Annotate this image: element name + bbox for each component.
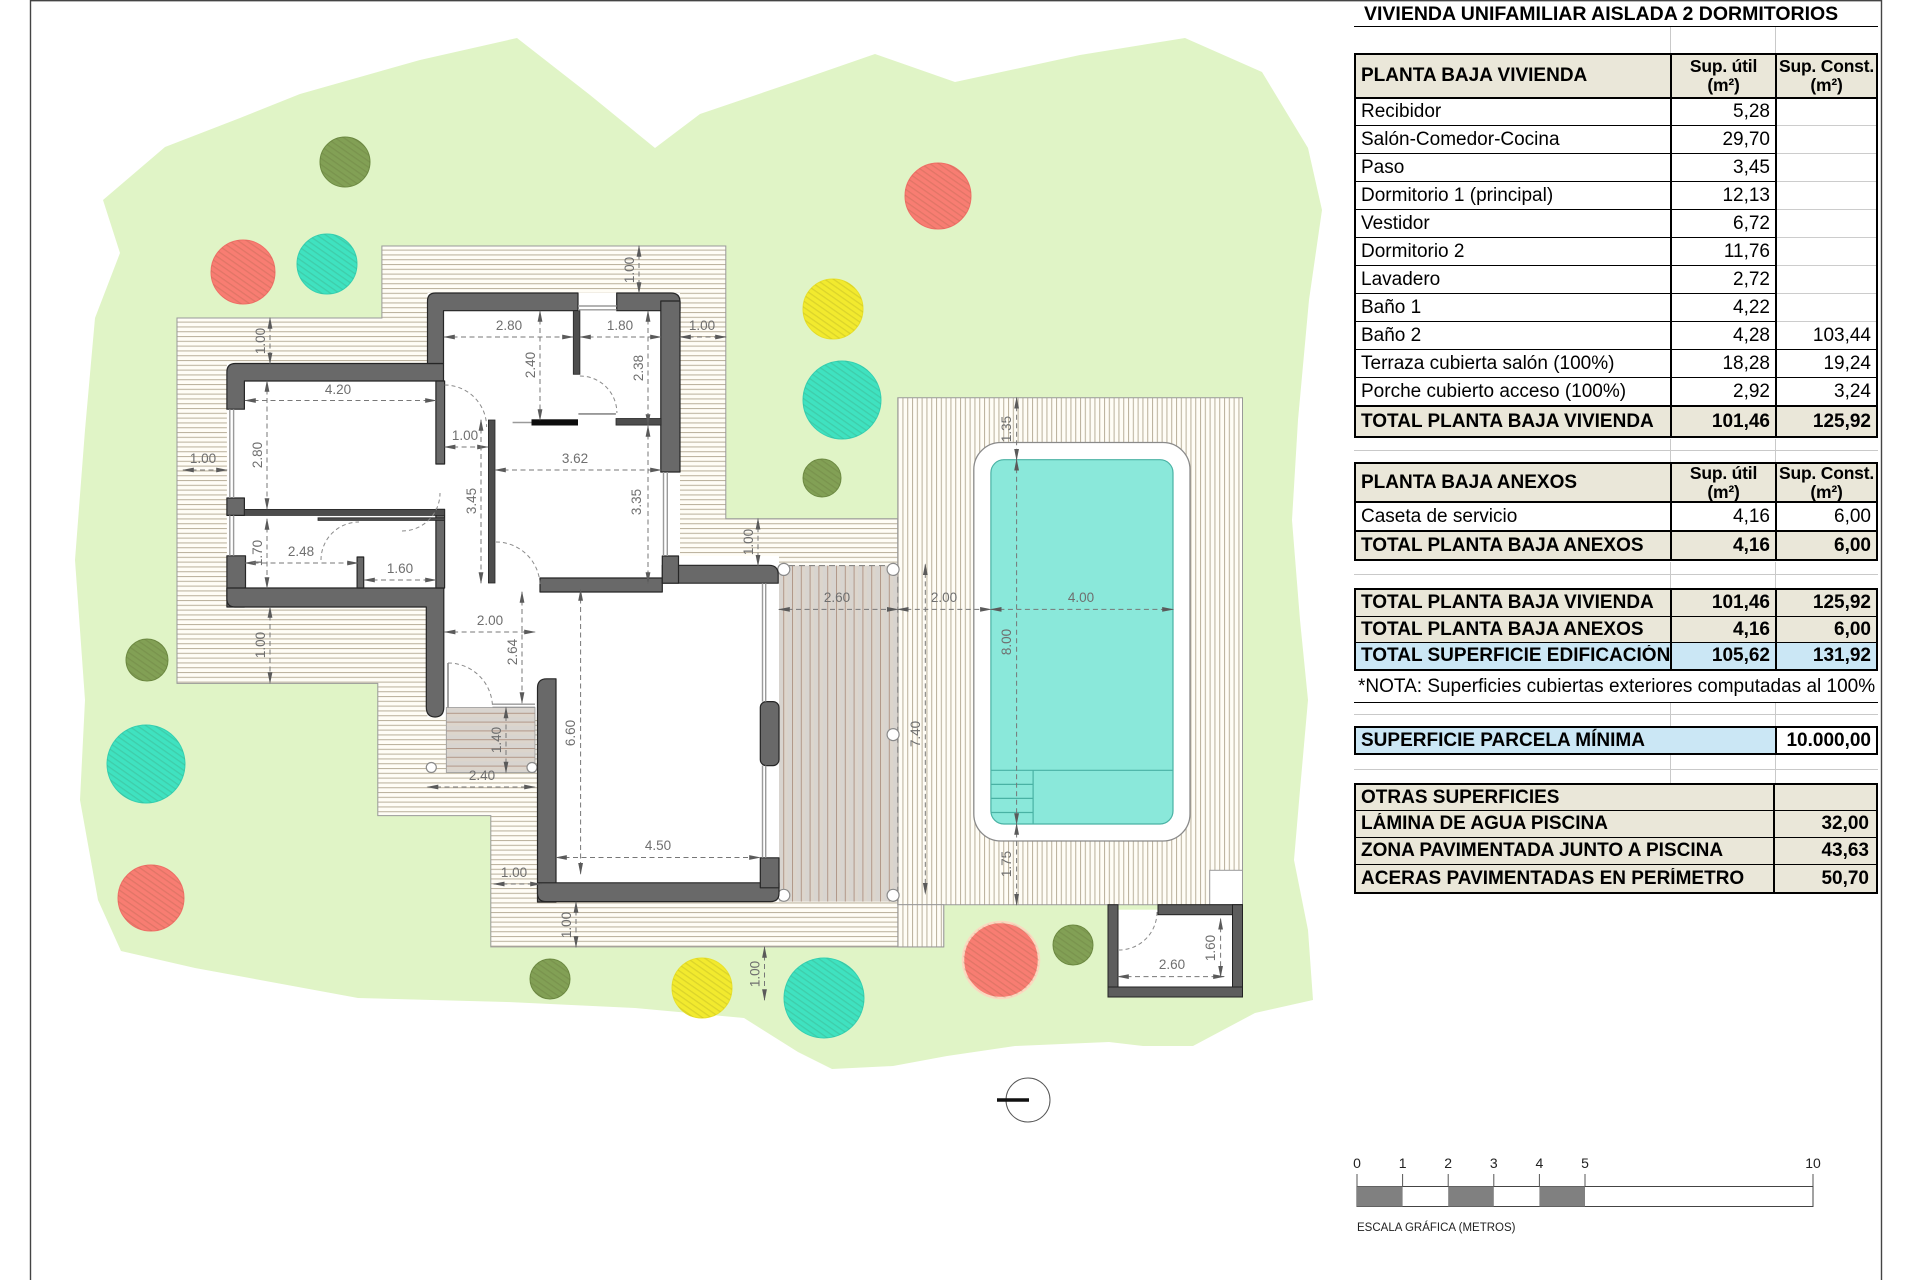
svg-text:1.35: 1.35 xyxy=(999,416,1014,442)
svg-text:3: 3 xyxy=(1490,1155,1498,1171)
svg-text:2.00: 2.00 xyxy=(477,613,503,628)
svg-text:1.00: 1.00 xyxy=(190,451,216,466)
svg-text:1.75: 1.75 xyxy=(999,851,1014,877)
svg-text:1.70: 1.70 xyxy=(250,540,265,566)
svg-text:1.60: 1.60 xyxy=(1203,935,1218,961)
svg-text:1.60: 1.60 xyxy=(387,561,413,576)
svg-text:2.64: 2.64 xyxy=(505,638,520,665)
svg-text:4.20: 4.20 xyxy=(325,382,351,397)
svg-text:7.40: 7.40 xyxy=(908,721,923,747)
svg-text:1.00: 1.00 xyxy=(748,961,763,987)
svg-text:2.60: 2.60 xyxy=(1159,957,1185,972)
svg-text:6.60: 6.60 xyxy=(563,720,578,746)
svg-text:3.35: 3.35 xyxy=(629,489,644,515)
svg-text:2.80: 2.80 xyxy=(250,442,265,468)
svg-text:2.00: 2.00 xyxy=(931,590,957,605)
svg-text:2.40: 2.40 xyxy=(523,352,538,378)
svg-text:0: 0 xyxy=(1353,1155,1361,1171)
svg-text:2.80: 2.80 xyxy=(496,318,522,333)
svg-text:1.00: 1.00 xyxy=(622,257,637,283)
svg-text:10: 10 xyxy=(1805,1155,1821,1171)
svg-text:3.45: 3.45 xyxy=(464,488,479,514)
svg-text:8.00: 8.00 xyxy=(999,629,1014,655)
svg-text:5: 5 xyxy=(1581,1155,1589,1171)
svg-text:4: 4 xyxy=(1536,1155,1544,1171)
svg-text:2.60: 2.60 xyxy=(824,590,850,605)
svg-text:2.48: 2.48 xyxy=(288,544,314,559)
svg-text:3.62: 3.62 xyxy=(562,451,588,466)
svg-text:1.00: 1.00 xyxy=(253,632,268,658)
svg-text:1.00: 1.00 xyxy=(501,865,527,880)
svg-text:1.80: 1.80 xyxy=(607,318,633,333)
svg-text:2.40: 2.40 xyxy=(469,768,495,783)
svg-text:ESCALA GRÁFICA (METROS): ESCALA GRÁFICA (METROS) xyxy=(1357,1221,1516,1234)
svg-text:1.00: 1.00 xyxy=(253,328,268,354)
svg-text:2.38: 2.38 xyxy=(631,355,646,381)
svg-text:4.50: 4.50 xyxy=(645,838,671,853)
svg-text:1.00: 1.00 xyxy=(452,428,478,443)
svg-text:1.40: 1.40 xyxy=(489,727,504,753)
svg-text:1.00: 1.00 xyxy=(689,318,715,333)
svg-text:1.00: 1.00 xyxy=(741,529,756,555)
svg-text:1: 1 xyxy=(1399,1155,1407,1171)
svg-text:1.00: 1.00 xyxy=(559,912,574,938)
svg-text:2: 2 xyxy=(1444,1155,1452,1171)
svg-text:4.00: 4.00 xyxy=(1068,590,1094,605)
